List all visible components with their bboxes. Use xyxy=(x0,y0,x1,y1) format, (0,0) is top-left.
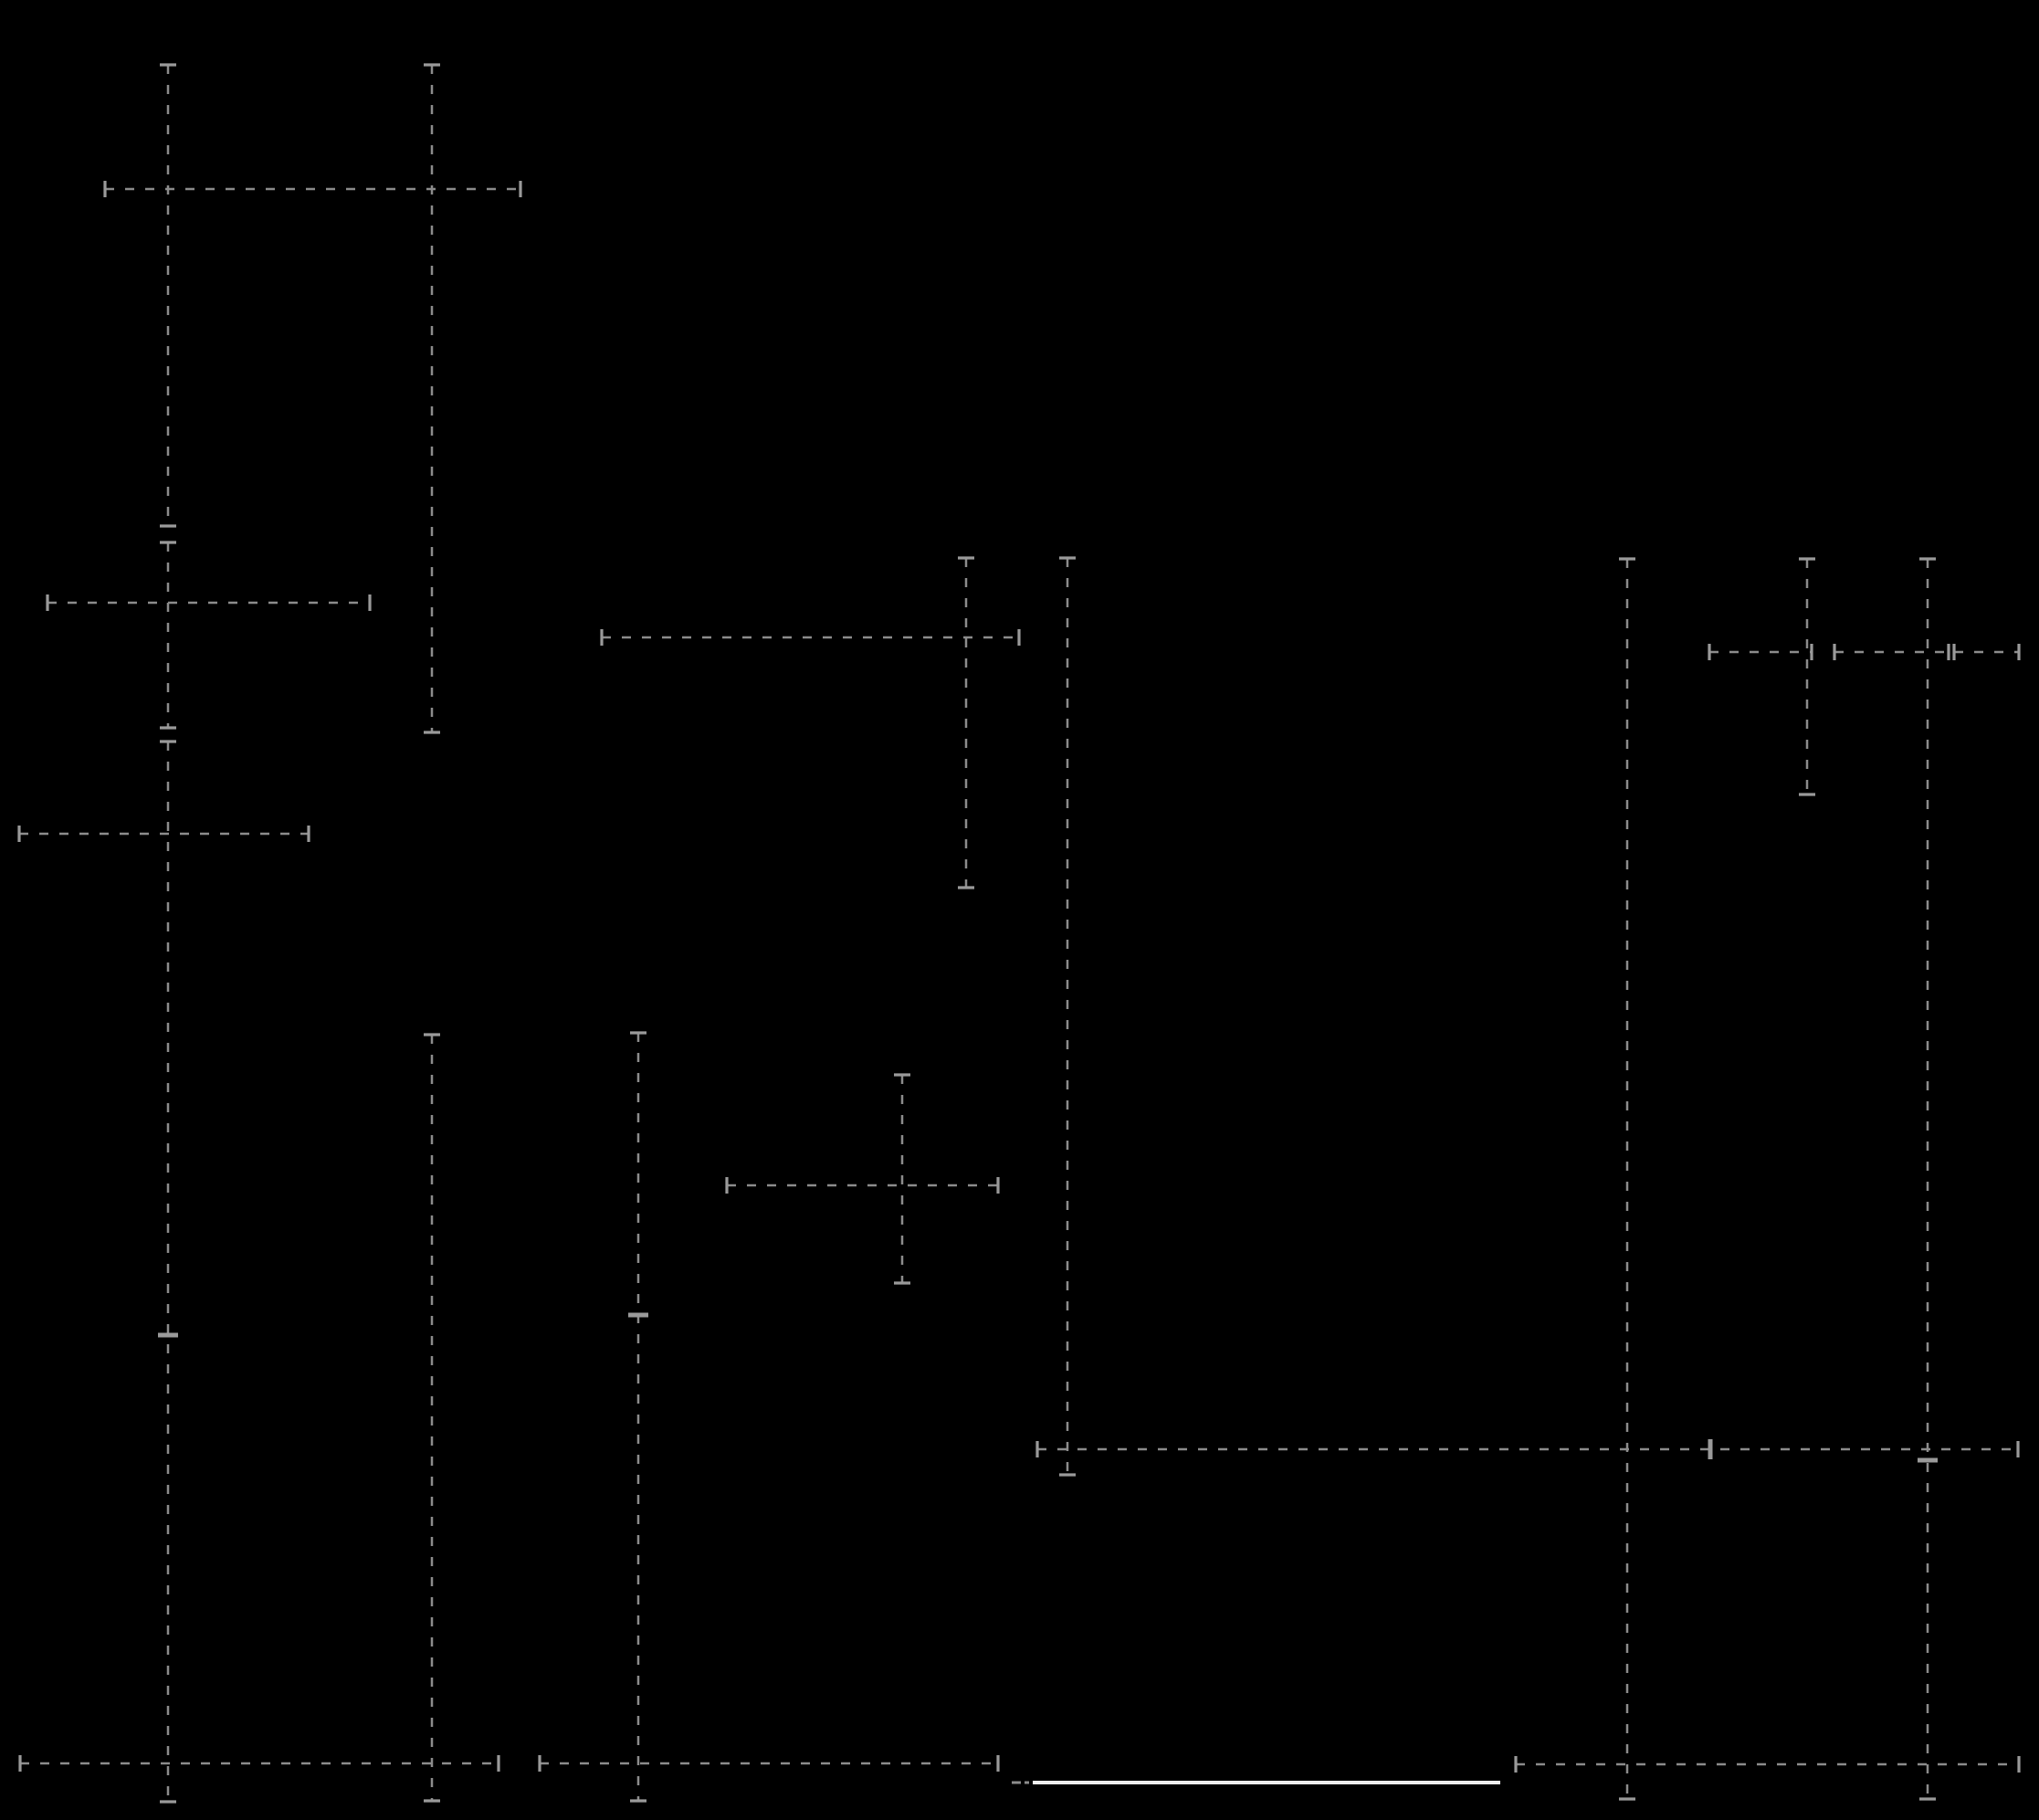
errorbar-plot xyxy=(0,0,2039,1820)
chart-canvas xyxy=(0,0,2039,1820)
